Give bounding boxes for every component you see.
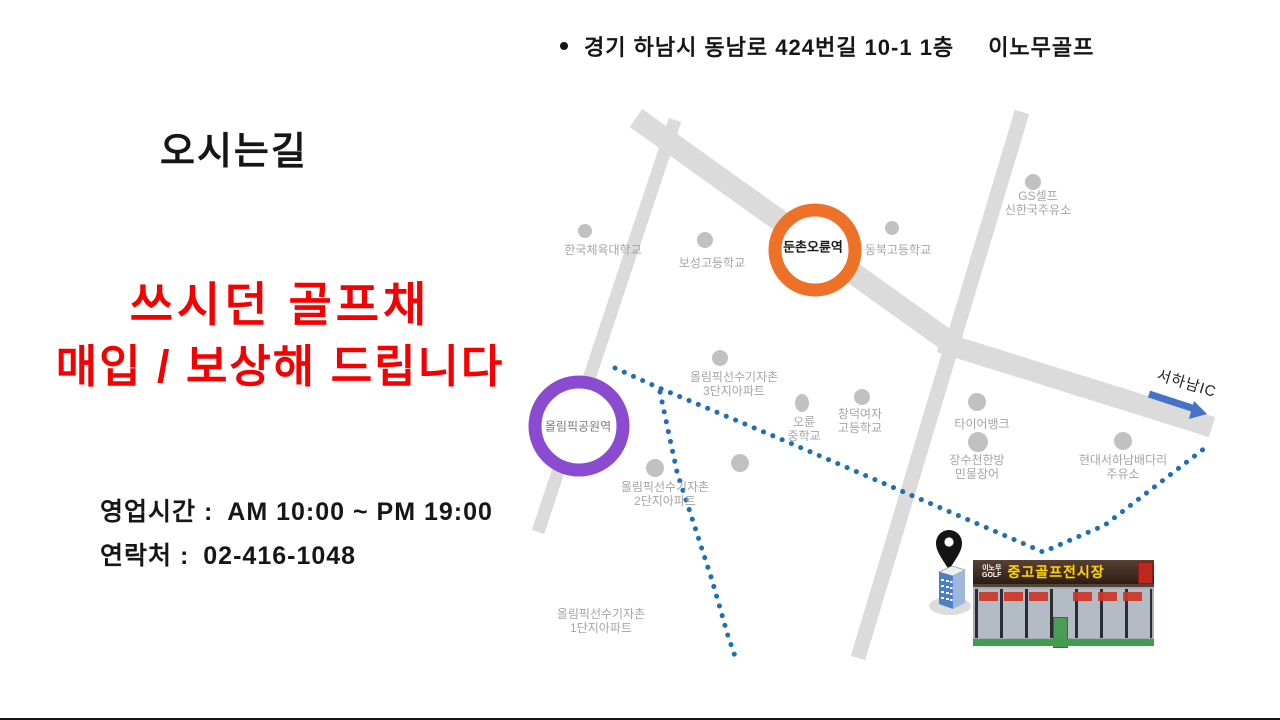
store-sign: 이노무 GOLF 중고골프전시장: [973, 560, 1154, 584]
poi-dot: [697, 232, 713, 248]
window-banner: [1073, 592, 1092, 601]
store-base-strip: [973, 639, 1154, 646]
window-banner: [1123, 592, 1142, 601]
window-banner: [979, 592, 998, 601]
poi-label-gs-station: GS셀프 신한국주유소: [1005, 189, 1071, 217]
poi-dot: [1114, 432, 1132, 450]
hours-label: 영업시간 :: [100, 498, 213, 526]
page-title: 오시는길: [160, 120, 308, 175]
promo-line-1: 쓰시던 골프채: [16, 266, 544, 335]
store-building-icon: [929, 566, 971, 615]
poi-dot: [854, 389, 870, 405]
business-hours: 영업시간 :AM 10:00 ~ PM 19:00: [100, 492, 493, 528]
poi-dot: [646, 459, 664, 477]
phone-label: 연락처 :: [100, 542, 189, 570]
poi-label-dongbuk-hs: 동북고등학교: [865, 243, 931, 257]
hours-value: AM 10:00 ~ PM 19:00: [227, 498, 493, 526]
station-label-olympic-park: 올림픽공원역: [545, 418, 611, 435]
poi-dot: [1025, 174, 1041, 190]
location-pin-icon: [936, 530, 962, 570]
poi-label-knsu: 한국체육대학교: [564, 243, 641, 257]
bullet-icon: [560, 42, 568, 50]
store-sign-brand: 이노무 GOLF: [982, 565, 1001, 579]
poi-label-hyundai-station: 현대서하남배다리 주유소: [1079, 453, 1167, 481]
poi-label-olympic-apt3: 올림픽선수기자촌 3단지아파트: [690, 370, 778, 398]
window-banner: [1004, 592, 1023, 601]
poi-dot: [968, 393, 986, 411]
poi-label-olympic-apt2: 올림픽선수기자촌 2단지아파트: [621, 480, 709, 508]
address-line: 경기 하남시 동남로 424번길 10-1 1층 이노무골프: [560, 30, 1094, 62]
address-text: 경기 하남시 동남로 424번길 10-1 1층: [584, 30, 954, 62]
store-sign-red-panel: [1138, 562, 1153, 584]
poi-dot: [795, 394, 809, 412]
brand-name: 이노무골프: [988, 30, 1094, 62]
window-banner: [1029, 592, 1048, 601]
poi-dot: [712, 350, 728, 366]
poi-dot: [731, 454, 749, 472]
store-sign-name: 중고골프전시장: [1007, 562, 1104, 582]
phone-value: 02-416-1048: [203, 542, 356, 570]
poi-dot: [578, 224, 592, 238]
window-banner: [1098, 592, 1117, 601]
storefront-photo: 이노무 GOLF 중고골프전시장: [973, 560, 1154, 646]
poi-label-changdeok-hs: 창덕여자 고등학교: [838, 407, 882, 435]
route-branch-dotted-line: [660, 392, 737, 662]
station-label-dunchon-oryun: 둔촌오륜역: [783, 237, 843, 256]
slide-canvas: 둔촌오륜역 올림픽공원역 한국체육대학교 보성고등학교 동북고등학교 GS셀프 …: [0, 0, 1280, 720]
store-facade: [973, 584, 1154, 646]
poi-label-eel-restaurant: 장수천한방 민물장어: [949, 453, 1004, 481]
contact: 연락처 :02-416-1048: [100, 536, 356, 572]
promo-line-2: 매입 / 보상해 드립니다: [16, 330, 544, 395]
poi-label-olympic-apt1: 올림픽선수기자촌 1단지아파트: [557, 607, 645, 635]
poi-label-tirebank: 타이어뱅크: [954, 417, 1009, 431]
poi-label-boseong-hs: 보성고등학교: [679, 256, 745, 270]
poi-dot: [968, 432, 988, 452]
poi-dot: [885, 221, 899, 235]
poi-label-oryun-ms: 오륜 중학교: [787, 415, 820, 443]
